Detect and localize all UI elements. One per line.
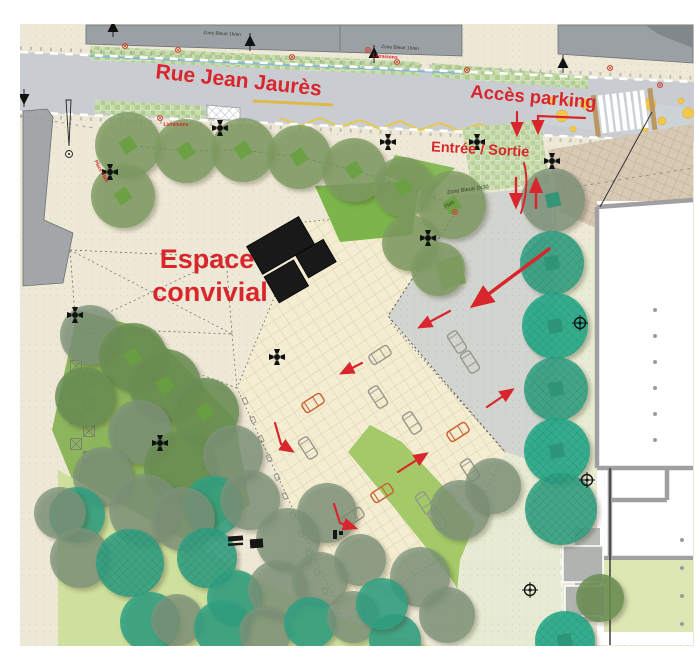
deliveries-south-label: Livraisons: [163, 122, 188, 128]
tree: [465, 458, 521, 514]
tree: [419, 587, 475, 643]
site-plan-map: Rue Jean Jaurès Accès parking Entrée / S…: [0, 0, 700, 661]
tree: [576, 574, 624, 622]
convivial-label-line2: convivial: [152, 277, 268, 307]
convivial-label-line1: Espace: [160, 244, 255, 274]
tree: [55, 367, 115, 427]
tree: [411, 242, 465, 296]
tree: [334, 534, 386, 586]
tree: [297, 483, 357, 543]
tree: [356, 578, 408, 630]
site-plan-page: Rue Jean Jaurès Accès parking Entrée / S…: [0, 0, 700, 661]
